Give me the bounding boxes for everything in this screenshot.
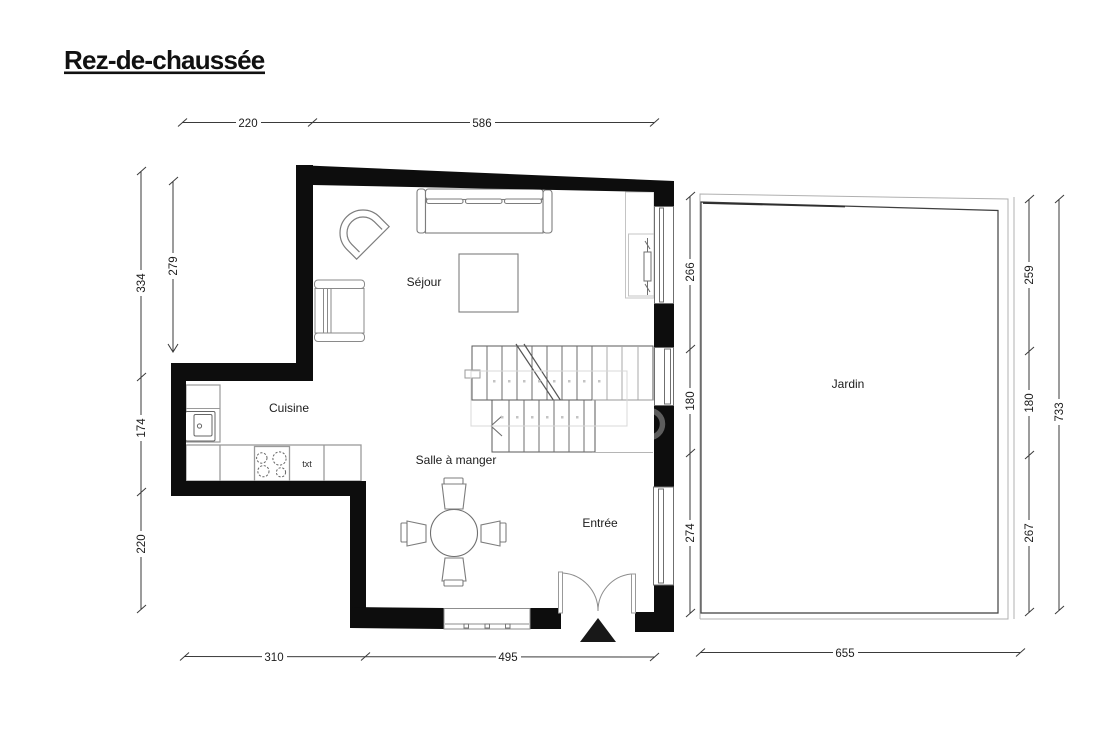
svg-text:733: 733 xyxy=(1054,402,1066,421)
svg-text:266: 266 xyxy=(685,262,697,281)
svg-text:279: 279 xyxy=(168,256,180,275)
svg-text:495: 495 xyxy=(498,652,517,664)
svg-text:220: 220 xyxy=(238,118,257,130)
svg-text:180: 180 xyxy=(1024,393,1036,412)
svg-text:174: 174 xyxy=(136,418,148,438)
svg-text:310: 310 xyxy=(264,652,283,664)
svg-text:334: 334 xyxy=(136,273,148,293)
svg-text:Rez-de-chaussée: Rez-de-chaussée xyxy=(64,45,265,75)
svg-text:655: 655 xyxy=(835,648,854,660)
svg-text:586: 586 xyxy=(472,118,491,130)
svg-text:Jardin: Jardin xyxy=(832,377,865,391)
svg-text:220: 220 xyxy=(136,534,148,553)
svg-text:180: 180 xyxy=(685,391,697,410)
svg-text:txt: txt xyxy=(302,459,312,469)
svg-text:Cuisine: Cuisine xyxy=(269,401,309,415)
svg-text:Entrée: Entrée xyxy=(582,516,618,530)
svg-text:Séjour: Séjour xyxy=(407,275,442,289)
svg-text:259: 259 xyxy=(1024,265,1036,284)
svg-text:274: 274 xyxy=(685,523,697,543)
svg-text:267: 267 xyxy=(1024,523,1036,542)
svg-text:Salle à manger: Salle à manger xyxy=(416,453,497,467)
